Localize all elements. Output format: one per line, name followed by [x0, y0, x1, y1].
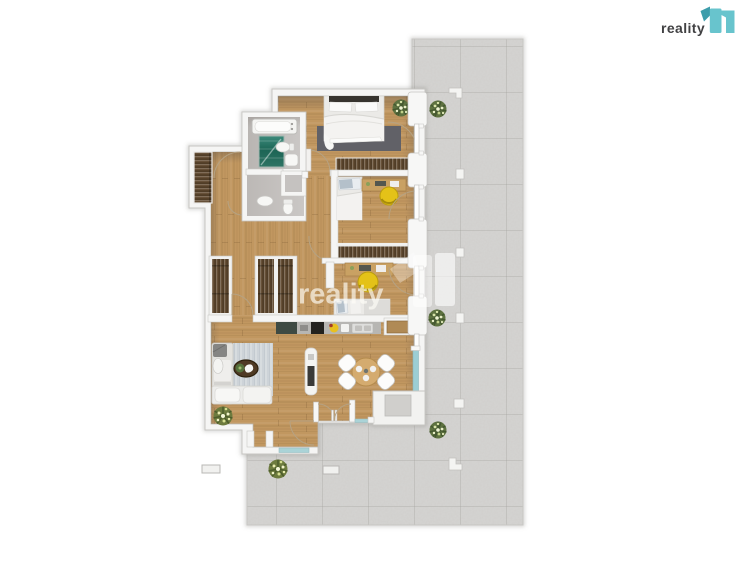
svg-text:reality: reality: [298, 279, 383, 311]
svg-text:reality: reality: [661, 20, 705, 36]
